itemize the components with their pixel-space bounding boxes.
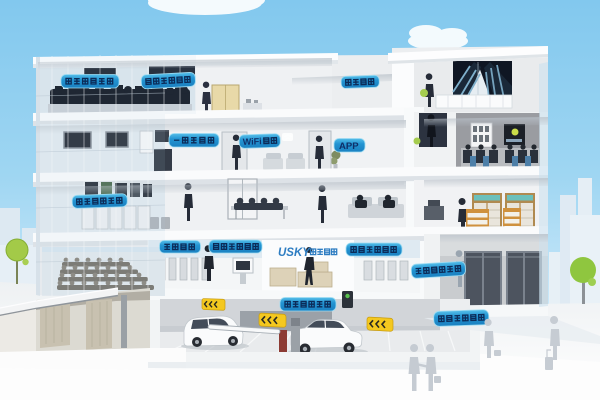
svg-text:APP: APP (339, 141, 359, 152)
svg-text:USKY: USKY (278, 247, 311, 259)
svg-text:WiFi: WiFi (243, 136, 262, 147)
